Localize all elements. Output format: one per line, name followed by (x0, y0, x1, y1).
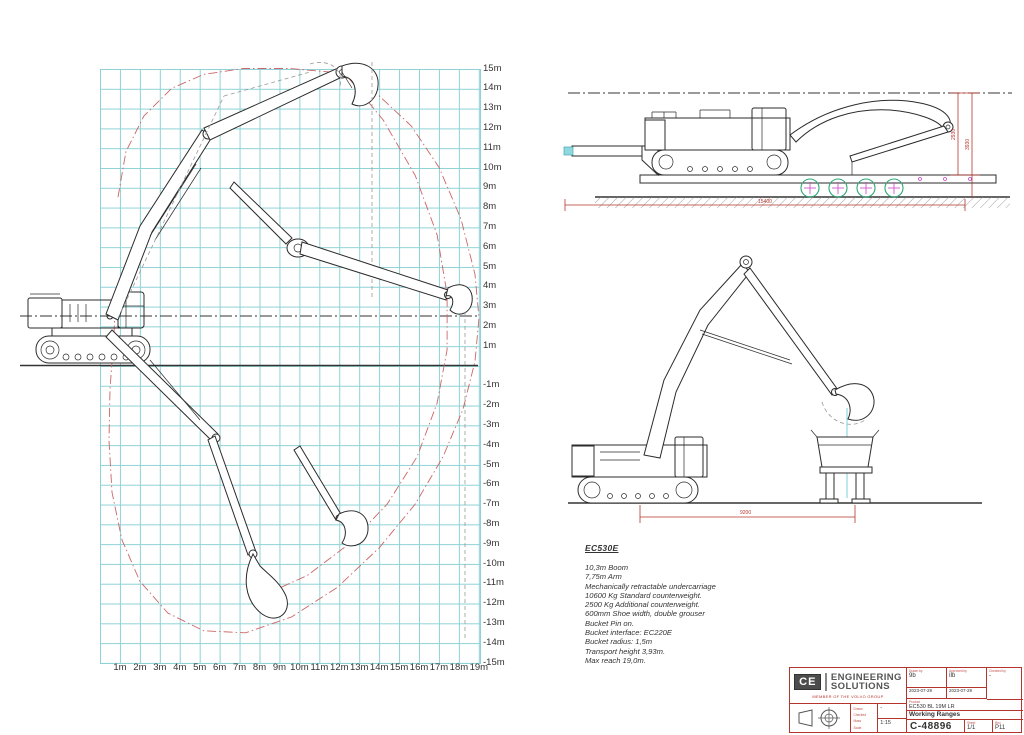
spec-line: Bucket Pin on. (585, 619, 716, 628)
sheet-value: 1/1 (965, 725, 992, 731)
drawing-title: Working Ranges (907, 711, 1023, 718)
product-value: EC530 BL 19M LR (907, 704, 1023, 710)
spec-line: Bucket interface: EC220E (585, 628, 716, 637)
logo-divider (825, 673, 827, 691)
transport-view: 2930 3930 15400 (564, 93, 1012, 211)
spec-line: 7,75m Arm (585, 572, 716, 581)
transport-inner-height-dim: 2930 (951, 129, 957, 140)
company-name-line2: SOLUTIONS (831, 682, 902, 692)
approved-date: 2023-07-29 (947, 688, 986, 693)
mini-field-label: Scale (853, 726, 875, 730)
rev-value: P11 (993, 725, 1023, 731)
mini-field-label: Mass (853, 719, 875, 723)
mini-field-label: Checked (853, 713, 875, 717)
spec-line: 600mm Shoe width, double grouser (585, 609, 716, 618)
spec-lines: 10,3m Boom7,75m ArmMechanically retracta… (585, 563, 716, 665)
company-logo: CE ENGINEERING SOLUTIONS MEMBER OF THE V… (790, 668, 906, 704)
spec-line: 10600 Kg Standard counterweight. (585, 591, 716, 600)
mini-field-label: Drawn (853, 707, 875, 711)
scale-value: 1:15 (878, 719, 906, 732)
loading-reach-dim: 9200 (740, 510, 751, 516)
ground-hatch (595, 197, 1010, 208)
bucket-dumping (835, 384, 874, 421)
spec-line: Mechanically retractable undercarriage (585, 582, 716, 591)
loading-dimension: 9200 (640, 505, 855, 523)
drawing-overlay: 2930 3930 15400 (0, 0, 1024, 735)
company-tagline: MEMBER OF THE VOLVO GROUP (812, 694, 883, 699)
title-block-mini-labels: DrawnCheckedMassScale (851, 704, 878, 732)
folded-arm (850, 126, 948, 162)
boom-position-deep-dig (106, 330, 287, 618)
checked-by-value: - (987, 673, 1023, 679)
excavator-transport-position (645, 100, 953, 175)
drawbar-eye-highlight (564, 147, 573, 155)
arm-extended (744, 268, 838, 395)
loading-view: 9200 (568, 256, 982, 523)
transport-length-dim: 15400 (758, 199, 772, 205)
document-number: C-48896 (907, 720, 964, 732)
title-block: CE ENGINEERING SOLUTIONS MEMBER OF THE V… (789, 667, 1022, 733)
projection-symbol-icon (790, 704, 851, 732)
specification-block: EC530E 10,3m Boom7,75m ArmMechanically r… (585, 543, 716, 665)
boom-raised (644, 264, 750, 458)
spec-line: Max reach 19,0m. (585, 656, 716, 665)
drawn-date: 2023-07-29 (907, 688, 946, 693)
transport-outer-height-dim: 3930 (965, 139, 971, 150)
boom-position-mid-depth (294, 446, 368, 546)
hopper-stand (811, 408, 879, 503)
spec-line: Transport height 3,93m. (585, 647, 716, 656)
drawn-by-value: 9b (907, 673, 946, 679)
envelope-outer-curve (109, 69, 479, 633)
working-range-diagram (20, 62, 480, 640)
spec-line: Bucket radius: 1,5m (585, 637, 716, 646)
approved-by-value: Ilb (947, 673, 986, 679)
boom-ghost-position (118, 62, 372, 318)
mass-value: - (878, 704, 906, 718)
ce-logo-icon: CE (794, 674, 821, 690)
spec-title: EC530E (585, 543, 716, 553)
drawing-sheet: 15m14m13m12m11m10m9m8m7m6m5m4m3m2m1m-1m-… (0, 0, 1024, 735)
spec-line: 2500 Kg Additional counterweight. (585, 600, 716, 609)
spec-line: 10,3m Boom (585, 563, 716, 572)
